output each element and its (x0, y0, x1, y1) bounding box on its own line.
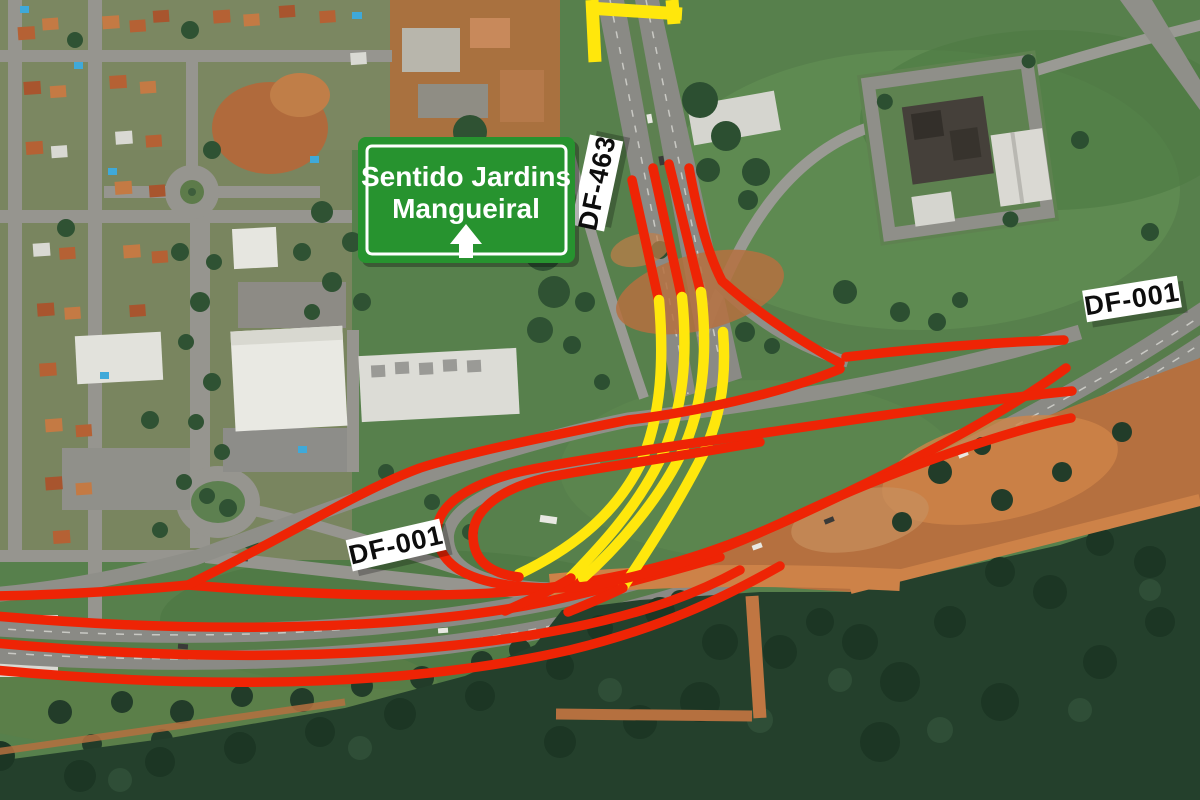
map-canvas: DF-463 DF-001 DF-001 Sentido Jardins Man… (0, 0, 1200, 800)
dirt-road-lower (556, 714, 752, 716)
green-direction-sign: Sentido Jardins Mangueiral (358, 137, 579, 267)
sign-line2: Mangueiral (392, 193, 540, 224)
building-store (75, 332, 163, 384)
building-supermarket (358, 348, 519, 422)
sign-line1: Sentido Jardins (361, 161, 571, 192)
satellite-map: DF-463 DF-001 DF-001 Sentido Jardins Man… (0, 0, 1200, 800)
overpass-marker-right-bar (672, 0, 674, 24)
overpass-marker-left-bar (592, 0, 595, 62)
building-mall (230, 326, 347, 432)
compound-top-right (857, 50, 1059, 245)
dirt-road-vertical (752, 596, 760, 718)
